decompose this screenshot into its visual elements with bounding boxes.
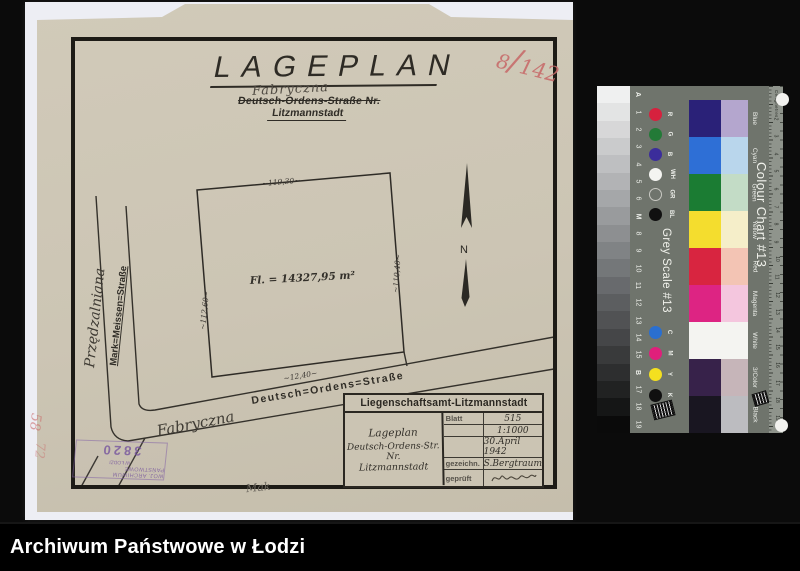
row-value: 30.April 1942 bbox=[484, 437, 542, 457]
row-value: 515 bbox=[484, 413, 542, 424]
archive-stamp-line2: W ŁODZI bbox=[109, 459, 130, 466]
street-name-diagonal-old: Fabryczna bbox=[154, 407, 235, 440]
city-name: Litzmannstadt bbox=[267, 107, 348, 121]
street-name-vertical: Mark=Meissen=Straße bbox=[108, 265, 129, 366]
row-value: S.Bergtraum bbox=[484, 458, 542, 469]
archive-name: Archiwum Państwowe w Łodzi bbox=[10, 536, 305, 559]
signature-squiggle bbox=[489, 470, 537, 486]
row-label bbox=[444, 437, 484, 457]
row-value bbox=[484, 470, 542, 486]
north-arrow-head bbox=[461, 163, 472, 228]
registration-dot-top bbox=[776, 93, 789, 106]
dim-top: ~119,30~ bbox=[261, 176, 300, 188]
archive-stamp-number: 3820 bbox=[100, 442, 142, 458]
archival-scan-view: N ~119,30~ ~110,40~ ~112,60~ ~12,40~ Fl.… bbox=[0, 0, 800, 571]
subject-line: Lageplan bbox=[368, 426, 417, 439]
title-block-header: Liegenschaftsamt-Litzmannstadt bbox=[345, 395, 542, 413]
north-arrow-tail bbox=[462, 259, 470, 307]
row-label: Blatt bbox=[444, 413, 484, 424]
red-margin-mark: 72 bbox=[31, 442, 47, 460]
archive-stamp: WOJ. ARCHIWUM PAŃSTWOWE W ŁODZI 3820 bbox=[72, 439, 168, 480]
row-label: geprüft bbox=[444, 470, 484, 486]
archive-stamp-line1: WOJ. ARCHIWUM PAŃSTWOWE bbox=[73, 463, 164, 478]
red-margin-mark: 58 bbox=[26, 412, 44, 432]
subject-line: Litzmannstadt bbox=[359, 461, 429, 473]
table-row: gezeichn. S.Bergtraum bbox=[444, 458, 542, 470]
table-row: 30.April 1942 bbox=[444, 437, 542, 458]
row-label: gezeichn. bbox=[444, 458, 484, 469]
archive-footer-bar: Archiwum Państwowe w Łodzi bbox=[0, 522, 800, 571]
pencil-initials: Mak bbox=[245, 480, 271, 495]
title-block-grid: Blatt 515 1:1000 30.April 1942 gezeichn.… bbox=[444, 413, 542, 486]
registration-dot-bottom bbox=[775, 419, 788, 432]
dim-left: ~112,60~ bbox=[198, 291, 211, 331]
table-row: geprüft bbox=[444, 470, 542, 486]
row-value: 1:1000 bbox=[484, 425, 542, 436]
subject-line: Nr. bbox=[386, 451, 400, 461]
area-label: Fl. = 14327,95 m² bbox=[249, 269, 356, 287]
table-row: 1:1000 bbox=[444, 425, 542, 437]
row-label bbox=[444, 425, 484, 436]
north-label: N bbox=[460, 244, 468, 256]
title-block-subject: Lageplan Deutsch-Ordens-Str. Nr. Litzman… bbox=[344, 412, 444, 487]
dim-right: ~110,40~ bbox=[391, 254, 403, 293]
table-row: Blatt 515 bbox=[444, 413, 542, 425]
title-block-table: Liegenschaftsamt-Litzmannstadt Lageplan … bbox=[343, 393, 544, 488]
